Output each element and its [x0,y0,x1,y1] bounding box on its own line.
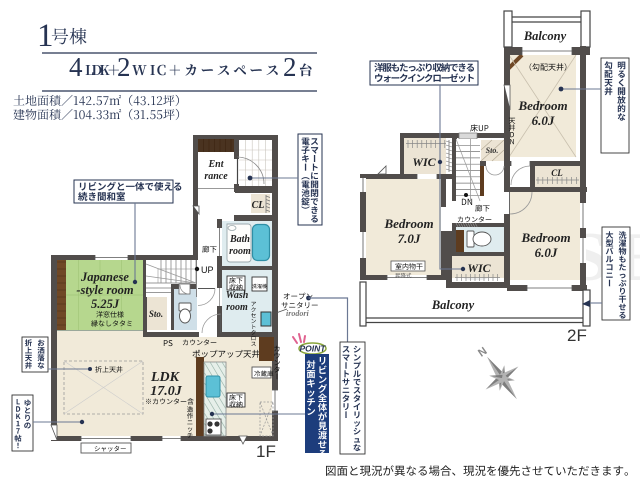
svg-text:2F: 2F [567,326,587,345]
svg-text:irodori: irodori [286,309,309,318]
svg-text:Balcony: Balcony [523,29,567,43]
svg-text:Bedroom: Bedroom [383,216,433,231]
svg-text:Bedroom: Bedroom [517,98,567,113]
svg-text:CL: CL [551,168,563,178]
svg-text:2: 2 [283,52,297,82]
svg-text:Sto.: Sto. [486,146,499,155]
svg-text:room: room [226,302,248,313]
svg-text:UP: UP [201,265,214,275]
svg-text:LDK: LDK [150,370,181,385]
svg-text:rance: rance [204,171,228,182]
svg-text:6.0J: 6.0J [532,113,555,128]
svg-text:6.0J: 6.0J [535,245,558,260]
svg-text:POINT: POINT [300,344,327,354]
svg-text:Bedroom: Bedroom [520,230,570,245]
svg-text:1: 1 [37,18,54,54]
svg-text:Balcony: Balcony [431,298,475,312]
svg-text:Ent: Ent [207,159,224,170]
svg-text:4: 4 [69,52,83,82]
svg-text:17.0J: 17.0J [150,384,183,399]
svg-text:WIC: WIC [412,155,436,169]
svg-text:-style room: -style room [76,283,134,297]
svg-text:Sto.: Sto. [149,309,163,319]
svg-text:Bath: Bath [229,234,250,245]
svg-text:CL: CL [252,200,265,211]
svg-text:Japanese: Japanese [80,270,129,284]
svg-text:Wash: Wash [226,290,249,301]
svg-text:7.0J: 7.0J [398,231,421,246]
svg-text:5.25J: 5.25J [91,297,120,311]
svg-text:WIC: WIC [467,261,491,275]
svg-text:2: 2 [117,52,131,82]
svg-text:room: room [229,246,251,257]
svg-text:1F: 1F [256,442,276,461]
